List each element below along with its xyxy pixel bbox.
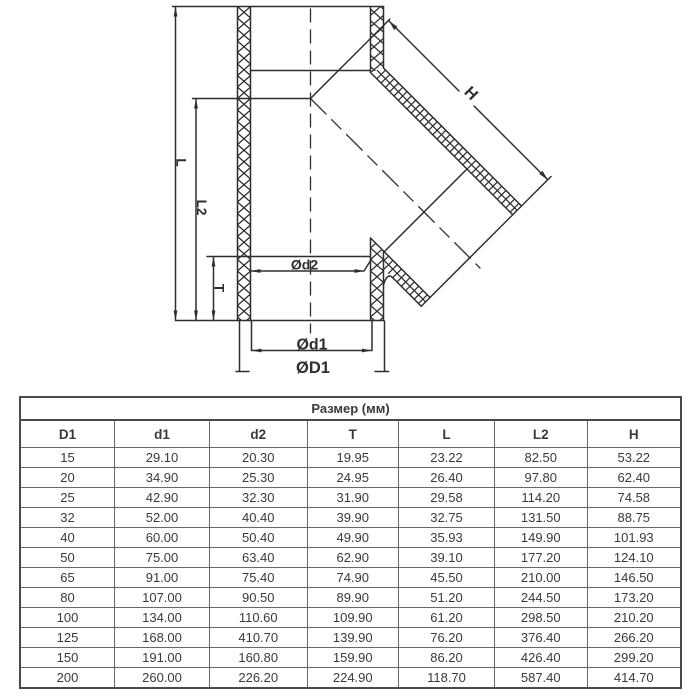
- svg-text:Ød2: Ød2: [291, 257, 318, 273]
- svg-text:Ød1: Ød1: [296, 337, 327, 354]
- svg-text:ØD1: ØD1: [296, 359, 330, 377]
- svg-text:H: H: [461, 84, 481, 104]
- svg-text:L: L: [174, 158, 189, 166]
- svg-text:T: T: [212, 284, 227, 293]
- svg-text:L2: L2: [194, 200, 209, 216]
